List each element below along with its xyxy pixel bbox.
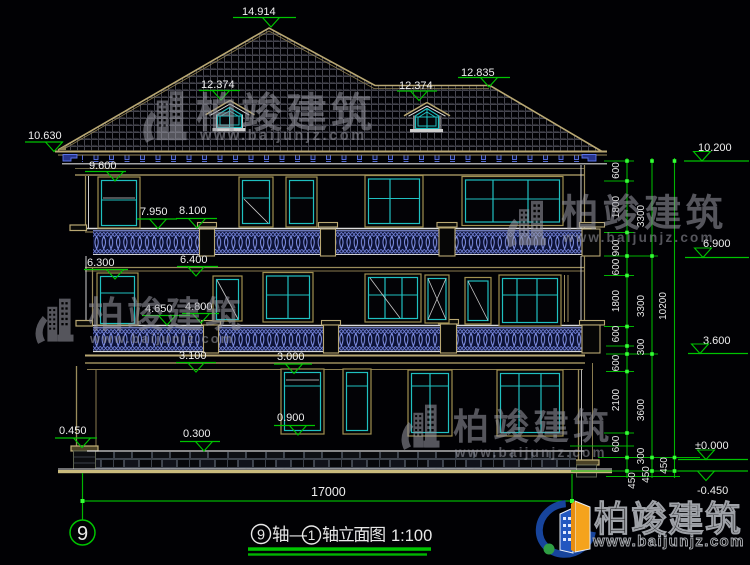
svg-text:10.630: 10.630 [28, 130, 62, 142]
svg-text:14.914: 14.914 [242, 6, 276, 18]
svg-text:柏竣建筑: 柏竣建筑 [453, 406, 613, 447]
svg-text:10.200: 10.200 [698, 142, 732, 154]
svg-text:www.baijunjz.com: www.baijunjz.com [592, 533, 745, 550]
svg-text:9: 9 [77, 523, 88, 545]
svg-text:300: 300 [636, 338, 647, 355]
svg-text:3300: 3300 [636, 294, 647, 317]
svg-text:-0.450: -0.450 [697, 485, 728, 497]
svg-text:6.400: 6.400 [180, 254, 208, 266]
svg-text:9.600: 9.600 [89, 160, 117, 172]
svg-text:600: 600 [611, 258, 622, 275]
svg-text:9: 9 [257, 528, 265, 544]
svg-text:8.100: 8.100 [179, 205, 207, 217]
svg-text:10200: 10200 [658, 292, 669, 320]
svg-text:0.300: 0.300 [183, 428, 211, 440]
svg-text:300: 300 [636, 447, 647, 464]
svg-text:柏竣建筑: 柏竣建筑 [561, 192, 727, 234]
svg-text:轴立面图: 轴立面图 [322, 526, 385, 545]
svg-text:1800: 1800 [611, 289, 622, 312]
svg-text:6.300: 6.300 [87, 257, 115, 269]
svg-text:0.900: 0.900 [277, 412, 305, 424]
svg-text:17000: 17000 [311, 485, 346, 499]
svg-text:0.450: 0.450 [59, 425, 87, 437]
svg-text:3.000: 3.000 [277, 351, 305, 363]
svg-text:www.baijunjz.com: www.baijunjz.com [454, 445, 607, 460]
svg-text:600: 600 [611, 354, 622, 371]
svg-text:450: 450 [641, 466, 652, 483]
svg-text:600: 600 [611, 325, 622, 342]
svg-text:www.baijunjz.com: www.baijunjz.com [199, 128, 367, 144]
svg-text:www.baijunjz.com: www.baijunjz.com [89, 331, 234, 346]
svg-text:12.374: 12.374 [399, 80, 433, 92]
svg-text:450: 450 [659, 457, 670, 474]
svg-text:www.baijunjz.com: www.baijunjz.com [562, 230, 715, 245]
svg-text:3600: 3600 [636, 398, 647, 421]
svg-text:1: 1 [308, 528, 316, 543]
svg-text:柏竣建筑: 柏竣建筑 [88, 294, 244, 335]
svg-text:7.950: 7.950 [140, 206, 168, 218]
svg-text:600: 600 [611, 162, 622, 179]
svg-text:450: 450 [627, 472, 638, 489]
svg-text:1:100: 1:100 [391, 527, 432, 545]
svg-text:3.100: 3.100 [179, 350, 207, 362]
